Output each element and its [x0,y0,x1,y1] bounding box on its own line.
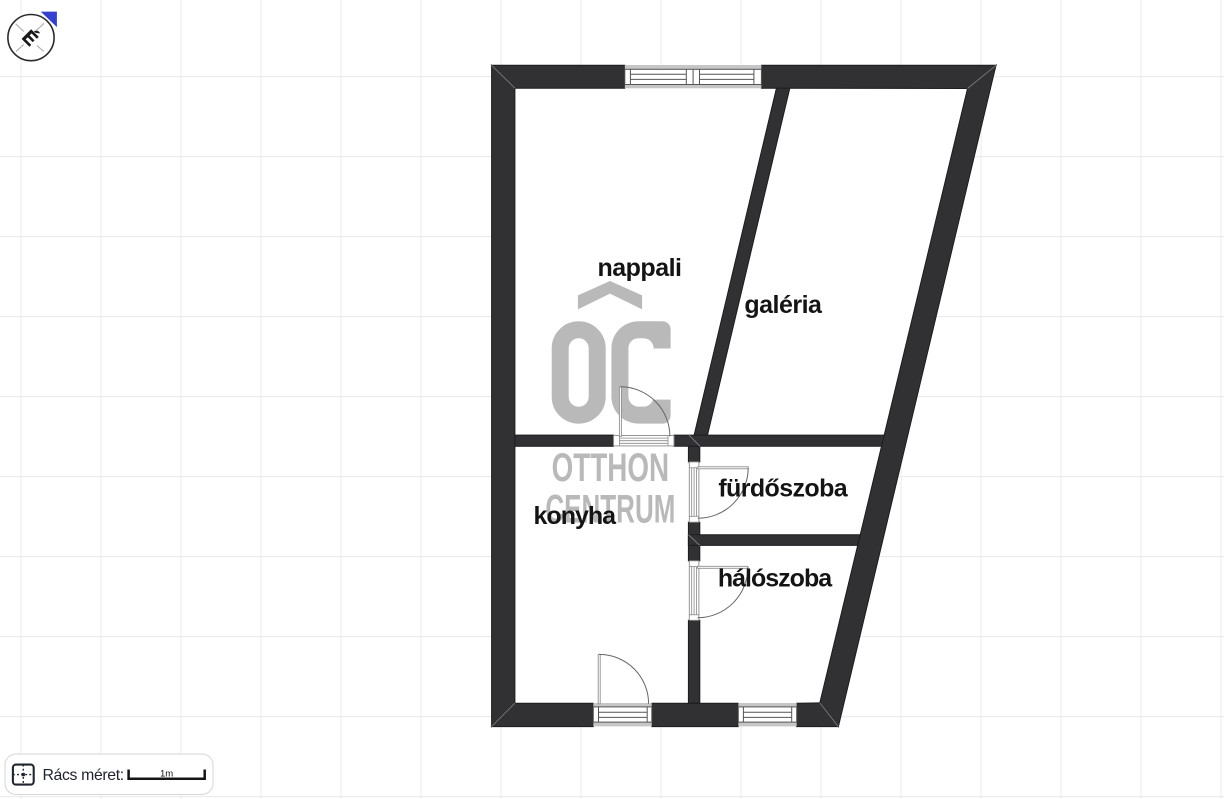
svg-text:Rács méret:: Rács méret: [43,767,124,784]
svg-text:hálószoba: hálószoba [718,565,833,593]
svg-text:fürdőszoba: fürdőszoba [718,475,848,503]
svg-text:galéria: galéria [744,291,823,319]
svg-text:konyha: konyha [534,502,618,530]
svg-text:OTTHON: OTTHON [552,446,670,490]
svg-text:nappali: nappali [597,254,681,282]
svg-text:1m: 1m [160,769,173,780]
